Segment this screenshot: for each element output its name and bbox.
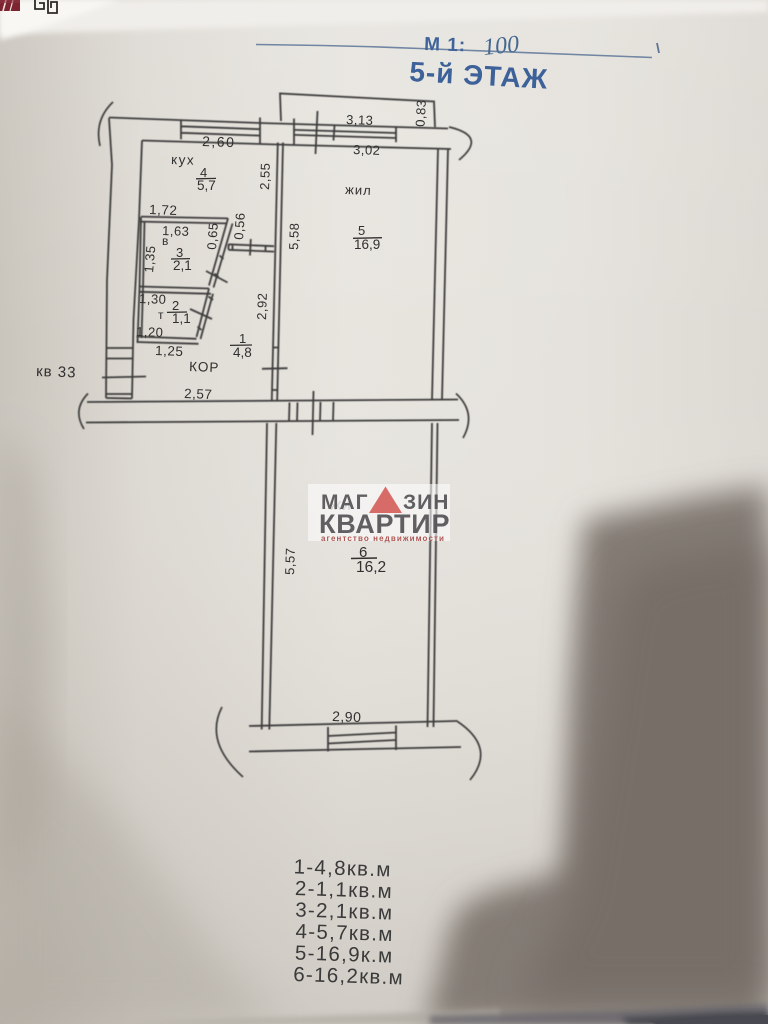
svg-text:1,20: 1,20 (136, 324, 164, 340)
svg-text:16,9: 16,9 (354, 237, 380, 252)
svg-text:КОР: КОР (189, 359, 220, 375)
svg-text:16,2: 16,2 (356, 559, 386, 576)
svg-text:агентство недвижимости: агентство недвижимости (321, 534, 445, 543)
svg-text:кух: кух (171, 152, 196, 168)
svg-text:100: 100 (482, 31, 521, 61)
svg-text:в: в (162, 234, 168, 248)
svg-text:кв 33: кв 33 (36, 363, 77, 381)
svg-text:6-16,2кв.м: 6-16,2кв.м (293, 963, 404, 989)
svg-text:2,57: 2,57 (184, 386, 213, 402)
svg-text:3,02: 3,02 (353, 142, 381, 158)
svg-text:5: 5 (358, 223, 365, 238)
svg-text:2,92: 2,92 (254, 292, 270, 320)
svg-text:4,8: 4,8 (233, 345, 252, 360)
svg-text:1,35: 1,35 (141, 245, 158, 274)
svg-text:2,90: 2,90 (332, 708, 362, 725)
svg-text:5,57: 5,57 (282, 547, 298, 575)
svg-text:0,65: 0,65 (204, 222, 221, 250)
svg-text:1,72: 1,72 (149, 202, 178, 218)
svg-text:0,56: 0,56 (231, 212, 248, 240)
svg-text:М 1:: М 1: (424, 34, 467, 56)
svg-text:жил: жил (345, 182, 372, 198)
svg-text:1: 1 (239, 331, 246, 346)
svg-text:1,30: 1,30 (139, 291, 167, 307)
svg-text:5,7: 5,7 (197, 178, 216, 193)
svg-text:0,83: 0,83 (413, 99, 429, 127)
svg-text:2,55: 2,55 (257, 162, 273, 190)
svg-text:т: т (158, 308, 164, 322)
svg-text:2,60: 2,60 (202, 133, 236, 150)
svg-text:1,1: 1,1 (172, 311, 191, 326)
svg-text:3,13: 3,13 (346, 112, 374, 128)
svg-text:2,1: 2,1 (173, 258, 192, 273)
svg-text:5,58: 5,58 (286, 222, 302, 250)
svg-text:1,25: 1,25 (155, 343, 184, 359)
